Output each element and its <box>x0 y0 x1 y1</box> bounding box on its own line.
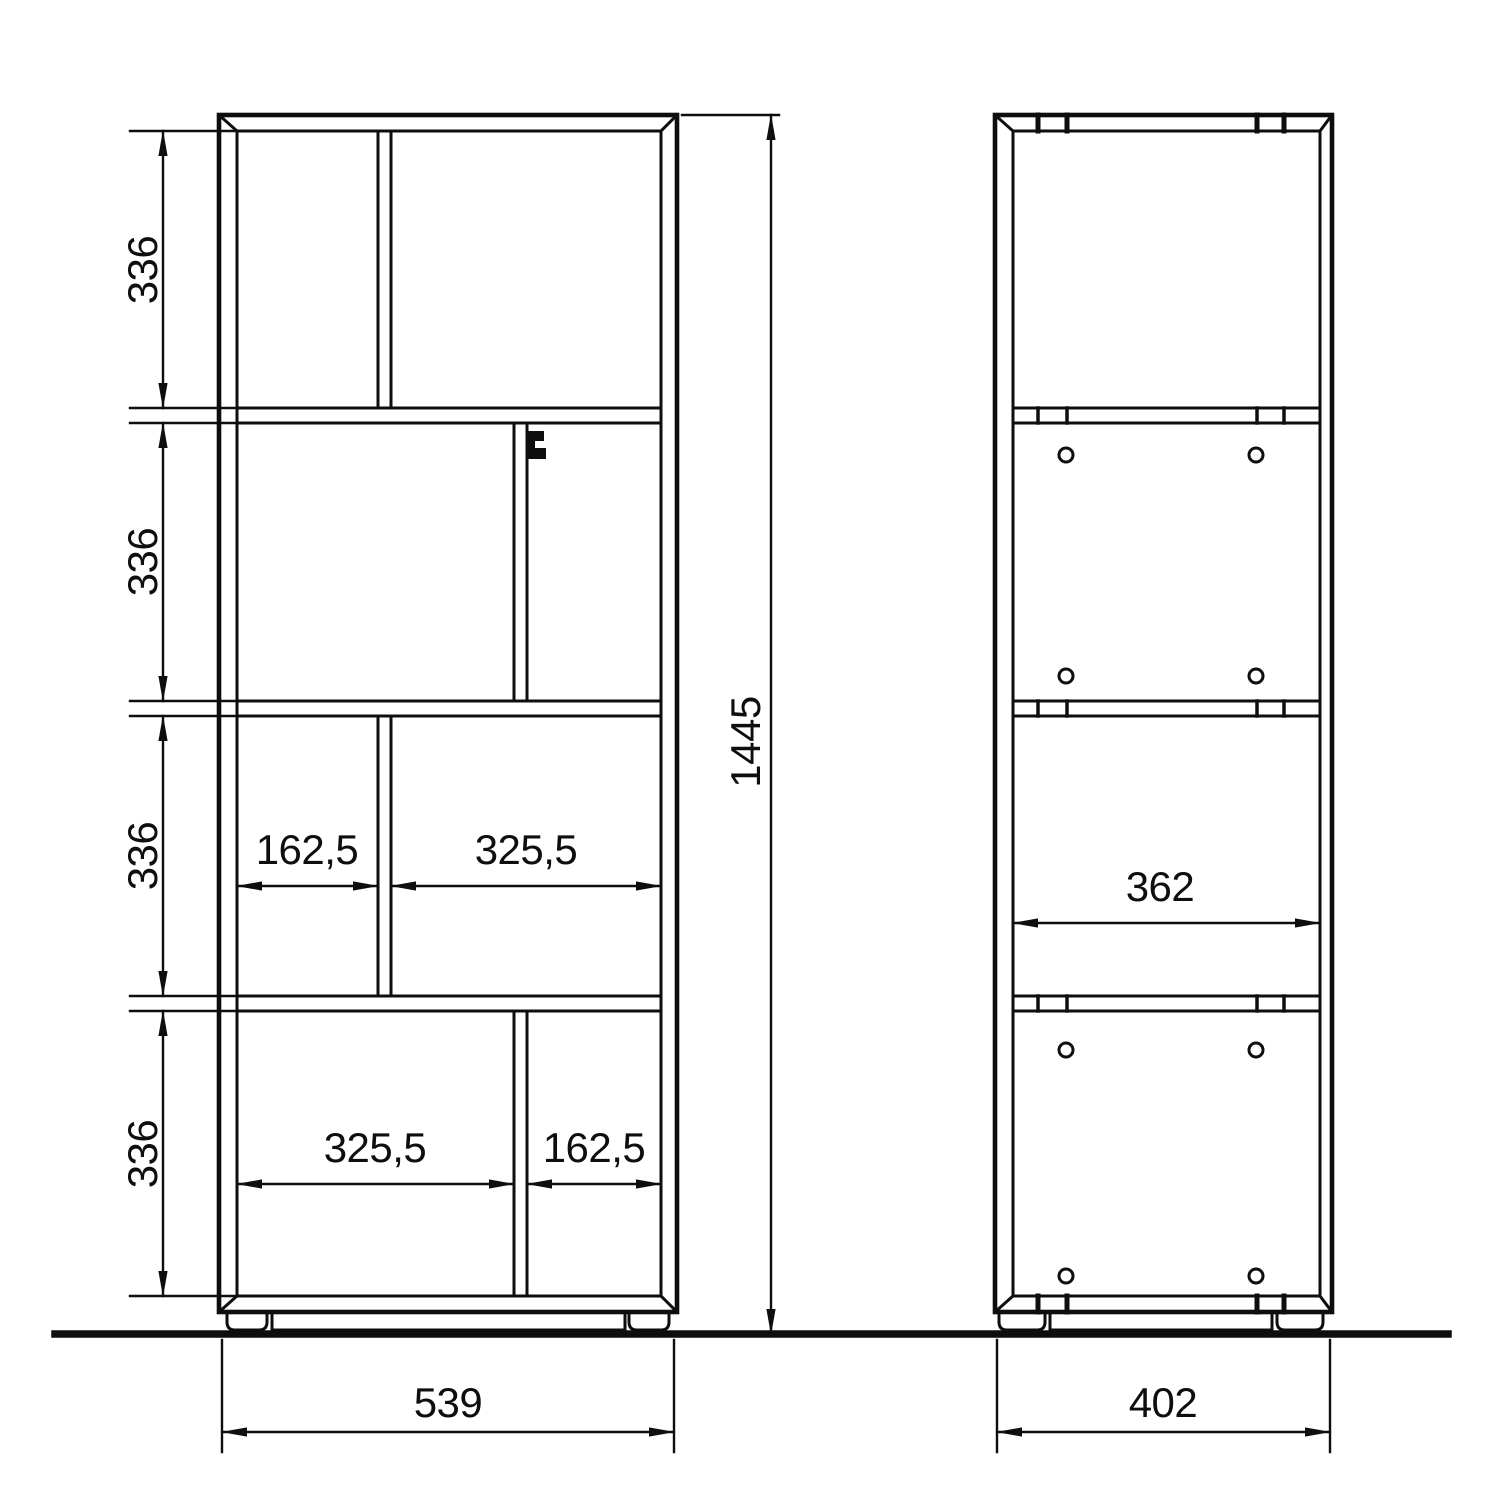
dim-label-section1-height: 336 <box>119 236 166 305</box>
side-inner-frame <box>1013 131 1320 1296</box>
front-divider-section1 <box>378 131 391 408</box>
side-view <box>995 115 1332 1330</box>
dim-label-row3-left: 162,5 <box>256 826 359 873</box>
front-divider-section2 <box>514 423 527 701</box>
front-foot-left <box>227 1312 267 1330</box>
side-feet <box>999 1312 1323 1330</box>
hinge-fitting-detail <box>527 431 546 459</box>
front-foot-right <box>629 1312 669 1330</box>
side-miter-top-left <box>995 115 1013 131</box>
technical-drawing-canvas: 336 336 336 336 1445 162,5 325,5 325,5 1… <box>0 0 1500 1500</box>
front-shelf-3 <box>237 996 661 1011</box>
miter-top-right <box>661 115 677 131</box>
dim-label-row4-left: 325,5 <box>324 1124 427 1171</box>
dim-label-section4-height: 336 <box>119 1120 166 1189</box>
side-foot-left <box>999 1312 1045 1330</box>
miter-bottom-left <box>219 1296 237 1312</box>
side-width-dimension: 402 <box>997 1340 1330 1452</box>
front-inner-dimensions: 162,5 325,5 325,5 162,5 <box>237 826 661 1184</box>
dim-label-row4-right: 162,5 <box>543 1124 646 1171</box>
front-inner-frame <box>237 131 661 1296</box>
dim-label-shelf-depth: 362 <box>1126 863 1195 910</box>
front-shelf-2 <box>237 701 661 716</box>
front-width-dimension: 539 <box>222 1340 674 1452</box>
side-foot-right <box>1277 1312 1323 1330</box>
shelf-dimension-diagram: 336 336 336 336 1445 162,5 325,5 325,5 1… <box>0 0 1500 1500</box>
front-divider-section4 <box>514 1011 527 1296</box>
dim-label-section3-height: 336 <box>119 822 166 891</box>
front-divider-section3 <box>378 716 391 996</box>
shelf-depth-dimension: 362 <box>1013 863 1320 923</box>
dim-label-section2-height: 336 <box>119 528 166 597</box>
side-miter-bottom-left <box>995 1296 1013 1312</box>
side-shelf-3 <box>1013 996 1320 1011</box>
dim-label-front-width: 539 <box>414 1379 483 1426</box>
total-height-dimension: 1445 <box>682 115 779 1334</box>
front-feet <box>227 1312 669 1330</box>
miter-top-left <box>219 115 237 131</box>
side-shelf-1 <box>1013 408 1320 423</box>
side-outer-frame <box>995 115 1332 1312</box>
front-shelf-1 <box>237 408 661 423</box>
dim-label-row3-right: 325,5 <box>475 826 578 873</box>
dim-label-side-width: 402 <box>1129 1379 1198 1426</box>
side-shelf-2 <box>1013 701 1320 716</box>
side-dowel-marks <box>1038 115 1284 1312</box>
dim-label-total-height: 1445 <box>722 696 769 787</box>
miter-bottom-right <box>661 1296 677 1312</box>
